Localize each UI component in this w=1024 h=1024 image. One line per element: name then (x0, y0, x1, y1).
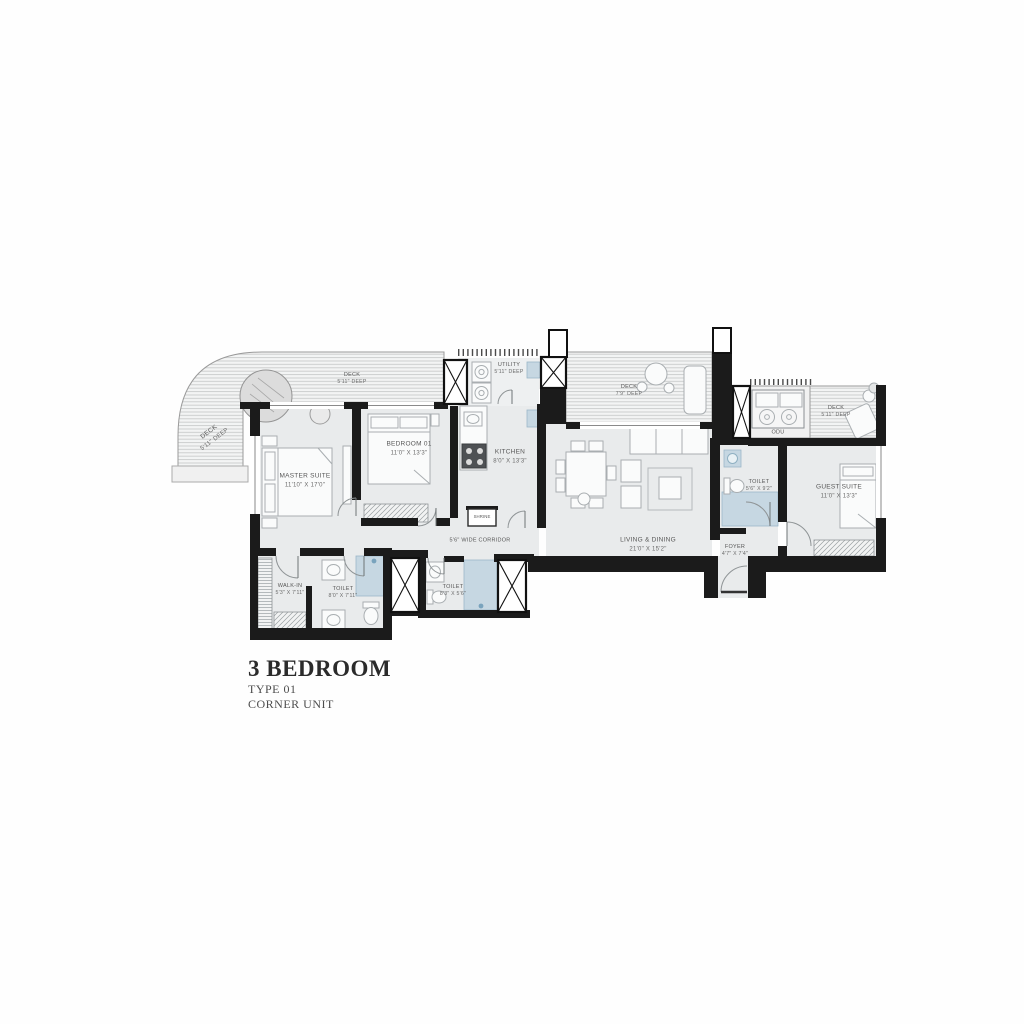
room-label-deck-top: DECK 5'11" DEEP (337, 372, 366, 386)
shower-head-2 (479, 604, 484, 609)
utility-washers (472, 362, 491, 403)
window-bedroom01-top (368, 402, 434, 409)
room-label-foyer: FOYER 4'7" X 7'4" (722, 544, 748, 558)
walkin-rack-left (258, 558, 272, 630)
room-label-odu: ODU (772, 429, 785, 436)
window-living-deck (580, 422, 700, 429)
common-shower (464, 560, 497, 610)
room-label-toilet-common: TOILET 8'3" X 5'6" (440, 584, 466, 598)
room-label-deck-right: DECK 5'11" DEEP (821, 405, 850, 419)
room-label-kitchen: KITCHEN 8'0" X 13'3" (493, 449, 527, 466)
room-label-shrine: SHRINE (474, 514, 491, 520)
shaft-top-left (444, 360, 467, 404)
shower-head-1 (372, 559, 377, 564)
shaft-bottom-mid (498, 560, 526, 612)
column-top-right (713, 328, 731, 353)
room-label-toilet-guest: TOILET 5'6" X 9'2" (746, 479, 772, 493)
plan-unit: CORNER UNIT (248, 698, 391, 712)
plan-type: TYPE 01 (248, 683, 391, 697)
stove (462, 444, 486, 468)
window-guest-right (876, 446, 886, 518)
room-label-walkin: WALK-IN 5'3" X 7'11" (275, 583, 304, 597)
title-block: 3 BEDROOM TYPE 01 CORNER UNIT (248, 656, 391, 711)
floorplan-drawing (0, 0, 1024, 1024)
odu-unit (752, 390, 804, 428)
window-master-left (250, 436, 260, 514)
window-master-top (270, 402, 344, 409)
room-label-toilet-master: TOILET 8'0" X 7'11" (328, 586, 357, 600)
room-label-deck-mid: DECK 7'9" DEEP (616, 384, 642, 398)
walkin-rack-bottom (274, 612, 306, 630)
room-label-guest: GUEST SUITE 11'0" X 13'3" (816, 484, 862, 501)
room-label-bedroom01: BEDROOM 01 11'0" X 13'3" (386, 441, 431, 458)
kitchen-counter (460, 406, 487, 470)
room-label-corridor: 5'6" WIDE CORRIDOR (450, 537, 511, 544)
kitchen-appliance-1 (527, 362, 540, 378)
shaft-bottom-left (391, 558, 419, 612)
shaft-kitchen-top (541, 357, 566, 388)
floorplan-page: DECK 5'11" DEEP DECK 5'11" DEEP UTILITY … (0, 0, 1024, 1024)
guest-wardrobe (814, 540, 874, 556)
deck-ledge (172, 466, 248, 482)
room-label-living: LIVING & DINING 21'0" X 15'2" (620, 537, 676, 554)
shaft-odu-left (733, 386, 750, 438)
column-deck-mid (549, 330, 567, 357)
room-label-master: MASTER SUITE 11'10" X 17'0" (279, 473, 330, 490)
plan-title: 3 BEDROOM (248, 656, 391, 682)
room-label-utility: UTILITY 5'11" DEEP (494, 362, 523, 376)
